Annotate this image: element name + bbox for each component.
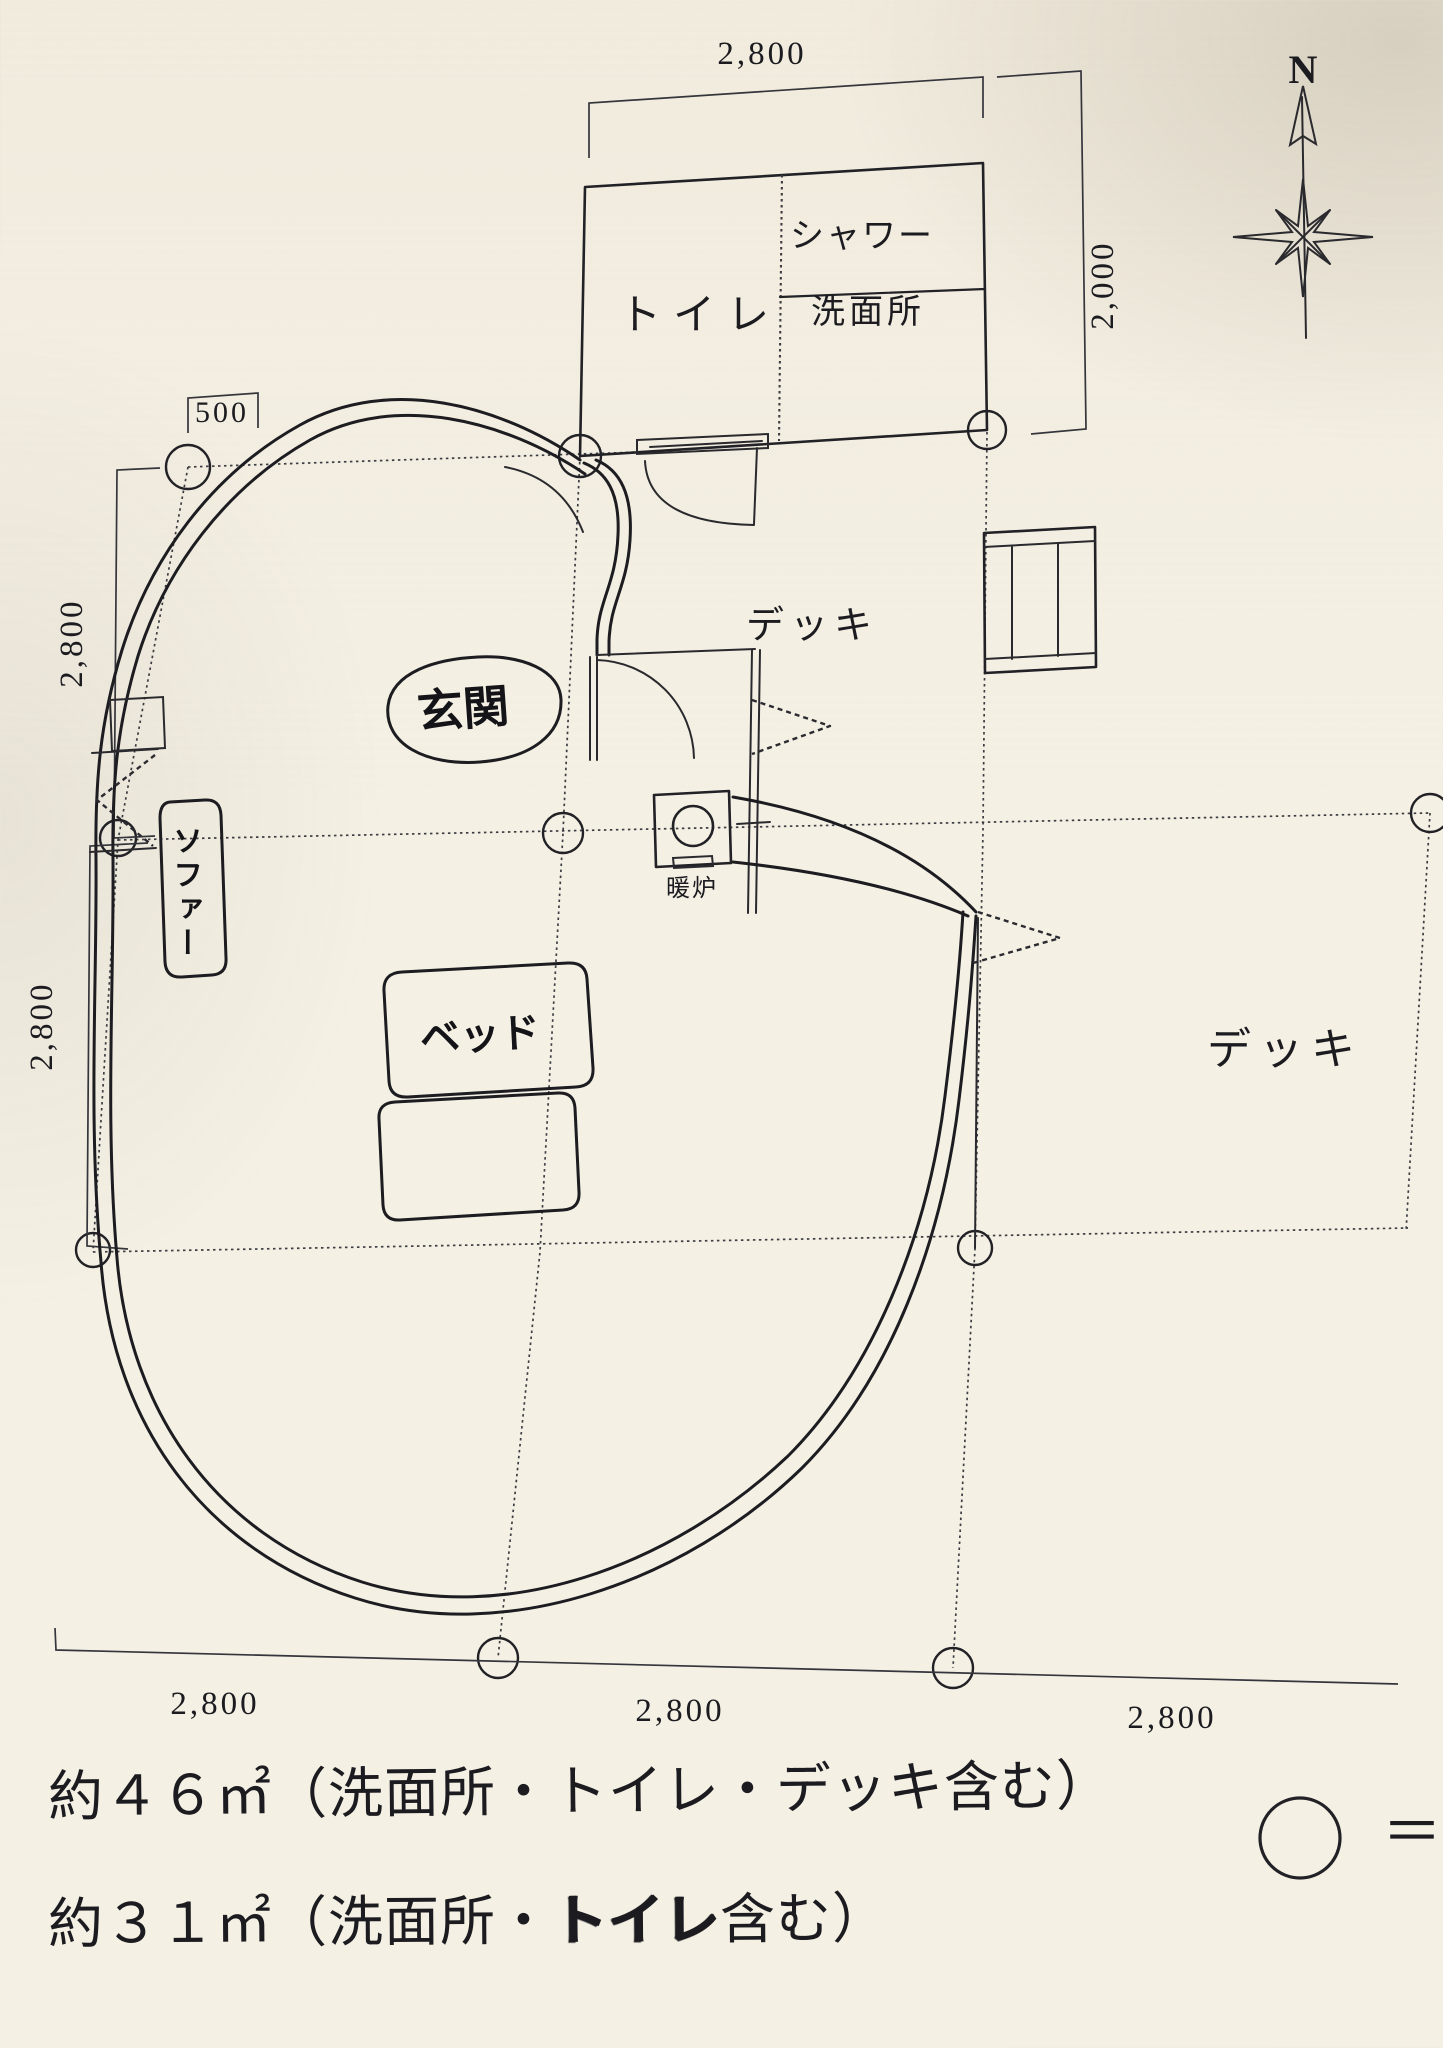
dim-label-bottom-left: 2,800 — [135, 1686, 295, 1722]
room-label-deck-right: デッキ — [1165, 1026, 1405, 1074]
stairs-bottom-tread — [985, 653, 1096, 659]
wall-tick — [737, 822, 770, 824]
deck-stairs — [984, 527, 1096, 673]
vestibule-wall-a — [584, 463, 618, 655]
area-note-2-suffix: 含む） — [720, 1888, 888, 1950]
entrance-door-swing — [597, 660, 694, 758]
opening-chevron-lower — [973, 912, 1060, 963]
living-room-right-wall — [748, 650, 760, 913]
stairs-outline — [984, 527, 1096, 673]
furniture-label-bed: ベッド — [399, 1010, 561, 1062]
dim-bottom-line — [55, 1628, 1398, 1684]
dim-label-right-height: 2,000 — [1085, 215, 1121, 355]
toilet-door-swing — [505, 467, 583, 532]
cabin-outer-wall — [94, 400, 976, 1615]
curved-wall-inner — [733, 862, 968, 916]
bathroom-door-leaf — [754, 448, 757, 524]
fireplace-flue — [673, 806, 713, 846]
floor-plan-photo: { "compass": { "north_label": "N" }, "ro… — [0, 0, 1443, 2048]
dim-label-bottom-right: 2,800 — [1092, 1700, 1252, 1736]
room-label-deck-upper: デッキ — [712, 606, 912, 648]
compass-north-label: N — [1273, 48, 1333, 92]
deck-upper-edge — [597, 649, 755, 655]
grid-row-3 — [93, 1228, 1408, 1252]
cabin-inner-wall — [111, 415, 963, 1597]
area-note-with-deck: 約４６㎡（洗面所・トイレ・デッキ含む） — [48, 1756, 1113, 1828]
window-chevron — [97, 755, 155, 846]
dim-label-top-width: 2,800 — [692, 36, 832, 72]
area-note-2-prefix: 約３１㎡（洗面所・ — [48, 1890, 552, 1955]
vestibule-wall-b — [596, 460, 630, 655]
room-label-entrance: 玄関 — [391, 679, 534, 739]
compass-stem — [1302, 97, 1306, 338]
grid-col-3 — [953, 432, 987, 1668]
grid-node — [478, 1638, 518, 1678]
compass-cross — [1276, 210, 1330, 264]
furniture-label-sofa: ソファー — [168, 818, 201, 968]
area-note-2-stamped-toilet: トイレ — [552, 1889, 720, 1951]
room-label-shower: シャワー — [762, 218, 962, 255]
dim-right-2000 — [997, 71, 1086, 434]
dim-top-2800 — [589, 77, 983, 158]
entrance-door-leaf — [590, 657, 597, 760]
grid-col-4 — [1406, 813, 1430, 1232]
opening-chevron-upper — [752, 700, 830, 754]
bed-lower-outline — [379, 1093, 579, 1220]
cabin-walls — [90, 400, 1060, 1615]
dim-label-left-lower: 2,800 — [24, 956, 60, 1096]
dim-label-bottom-center: 2,800 — [600, 1693, 760, 1729]
stairs-steps — [1012, 544, 1058, 659]
legend-column-symbol — [1260, 1798, 1340, 1878]
stairs-top-tread — [984, 541, 1095, 547]
dim-label-left-upper: 2,800 — [54, 573, 90, 713]
grid-row-2 — [118, 813, 1430, 840]
area-note-without-deck: 約３１㎡（洗面所・トイレ含む） — [48, 1889, 888, 1955]
room-label-fireplace: 暖炉 — [642, 876, 742, 902]
bathroom-door-swing — [645, 461, 754, 525]
curved-wall-outer — [733, 797, 976, 912]
compass-rose-icon — [1233, 86, 1373, 338]
dim-label-entry-offset: 500 — [172, 396, 272, 429]
grid-node — [76, 1233, 110, 1267]
room-label-washroom: 洗面所 — [768, 294, 968, 331]
deck-right-left-edge — [975, 918, 978, 1248]
legend-equals: ＝ — [1372, 1800, 1443, 1866]
